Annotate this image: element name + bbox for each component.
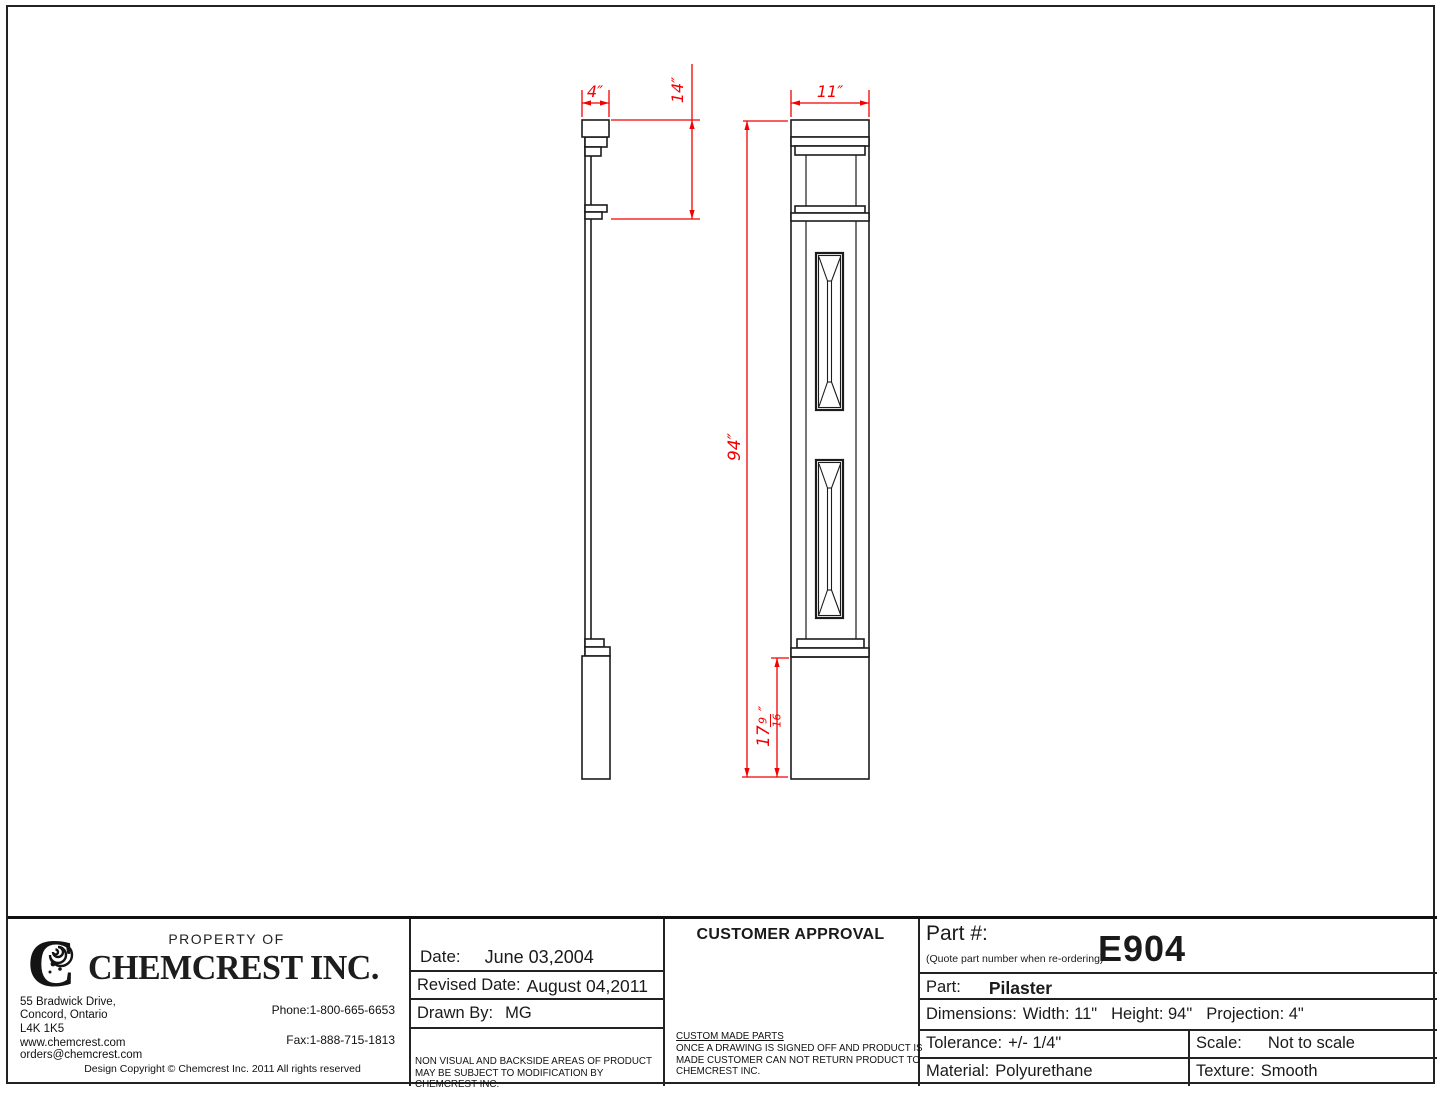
part-number-value: E904 [1098,928,1186,970]
drawn-by-label: Drawn By: [417,1004,493,1023]
front-view [791,120,869,779]
divider-revised-row [409,998,665,1000]
divider-logo-dates [409,919,411,1086]
scale-row: Scale:Not to scale [1196,1034,1355,1053]
revised-date-row: Revised Date:August 04,2011 [417,976,648,997]
dim-label-94in: 94″ [725,432,745,461]
part-number-label: Part #: [926,922,988,946]
tolerance-row: Tolerance:+/- 1/4" [926,1034,1061,1053]
side-view [582,120,610,779]
dim-label-4in: 4″ [587,82,603,101]
divider-dimensions-row [918,1029,1437,1031]
dim-projection-4in: 4″ [582,82,609,117]
date-label: Date: [420,947,461,967]
dimensions-row: Dimensions: Width: 11" Height: 94" Proje… [926,1005,1304,1024]
drawn-by-value: MG [505,1004,532,1023]
tolerance-label: Tolerance: [926,1034,1002,1053]
divider-partno-row [918,972,1437,974]
company-name: CHEMCREST INC. [88,949,379,989]
date-row: Date:June 03,2004 [420,947,594,968]
design-copyright: Design Copyright © Chemcrest Inc. 2011 A… [50,1063,395,1075]
lower-panel [816,460,843,618]
modification-note: NON VISUAL AND BACKSIDE AREAS OF PRODUCT… [415,1056,663,1091]
revised-date-label: Revised Date: [417,976,521,995]
address-line-1: 55 Bradwick Drive, [20,996,116,1009]
dim-label-base-height: 17 9 16 ″ [754,705,784,747]
fax-number: Fax:1-888-715-1813 [160,1033,395,1047]
texture-label: Texture: [1196,1062,1255,1081]
dim-base-numerator: 9 [757,717,770,724]
dimensions-width: Width: 11" [1023,1005,1097,1024]
dim-base-unit: ″ [757,705,773,711]
texture-value: Smooth [1261,1062,1318,1081]
dim-label-11in: 11″ [817,82,843,101]
divider-date-row [409,970,665,972]
dim-height-94in: 94″ [725,121,788,777]
part-label: Part: [926,978,961,997]
material-label: Material: [926,1062,989,1081]
divider-tolerance-row [918,1057,1437,1059]
dim-base-height: 17 9 16 ″ [754,658,789,777]
material-row: Material:Polyurethane [926,1062,1093,1081]
revised-date-value: August 04,2011 [527,976,648,997]
drawn-by-row: Drawn By:MG [417,1004,532,1023]
dim-label-14in: 14″ [668,77,687,103]
dim-base-denominator: 16 [771,714,784,728]
dim-capital-14in: 14″ [611,64,700,219]
texture-row: Texture:Smooth [1196,1062,1318,1081]
part-value: Pilaster [989,978,1052,999]
custom-made-parts-note: ONCE A DRAWING IS SIGNED OFF AND PRODUCT… [676,1043,928,1078]
dimensions-height: Height: 94" [1111,1005,1192,1024]
property-of-label: PROPERTY OF [139,931,314,947]
tolerance-value: +/- 1/4" [1008,1034,1061,1053]
scale-label: Scale: [1196,1034,1242,1053]
titleblock-top-border [8,916,1437,919]
dim-width-11in: 11″ [791,82,869,117]
email: orders@chemcrest.com [20,1049,142,1062]
chemcrest-logo: C [27,934,85,992]
upper-panel [816,253,843,410]
phone-number: Phone:1-800-665-6653 [160,1003,395,1017]
customer-approval-signature-area[interactable] [665,928,916,1028]
dimensions-label: Dimensions: [926,1005,1017,1024]
address-line-3: L4K 1K5 [20,1023,64,1036]
part-row: Part:Pilaster [926,978,1052,999]
divider-drawn-row [409,1027,665,1029]
dimensions-projection: Projection: 4" [1206,1005,1304,1024]
custom-made-parts-title: CUSTOM MADE PARTS [676,1031,784,1043]
part-number-hint: (Quote part number when re-ordering) [926,953,1103,965]
address-line-2: Concord, Ontario [20,1009,108,1022]
material-value: Polyurethane [995,1062,1092,1081]
date-value: June 03,2004 [485,947,594,968]
scale-value: Not to scale [1268,1034,1355,1053]
